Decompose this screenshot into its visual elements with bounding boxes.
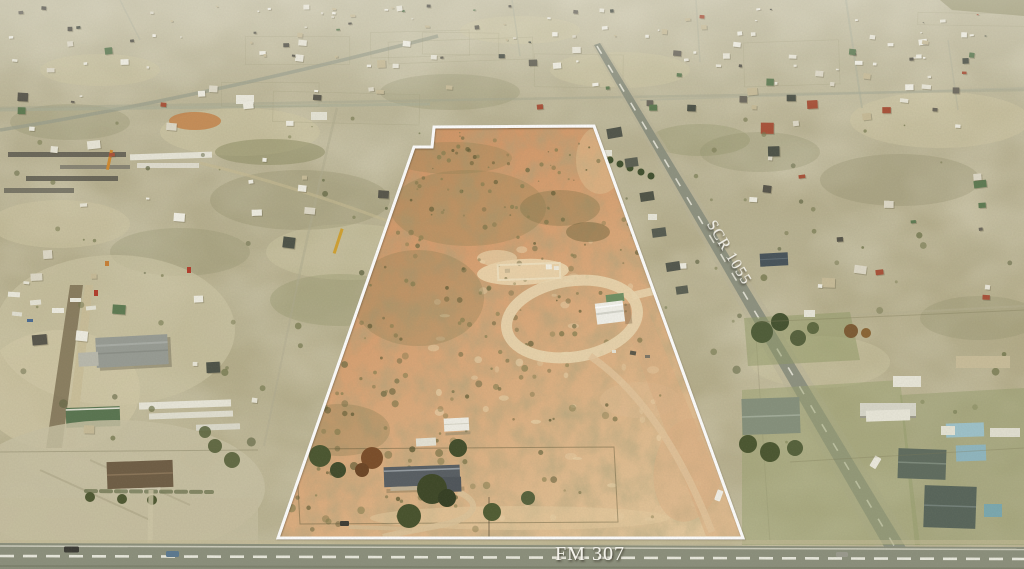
aerial-photo: FM 307 SCR 1055 [0, 0, 1024, 569]
horizon-haze [0, 0, 1024, 110]
road-label-fm-307: FM 307 [555, 543, 625, 565]
aerial-scene: FM 307 SCR 1055 [0, 0, 1024, 569]
